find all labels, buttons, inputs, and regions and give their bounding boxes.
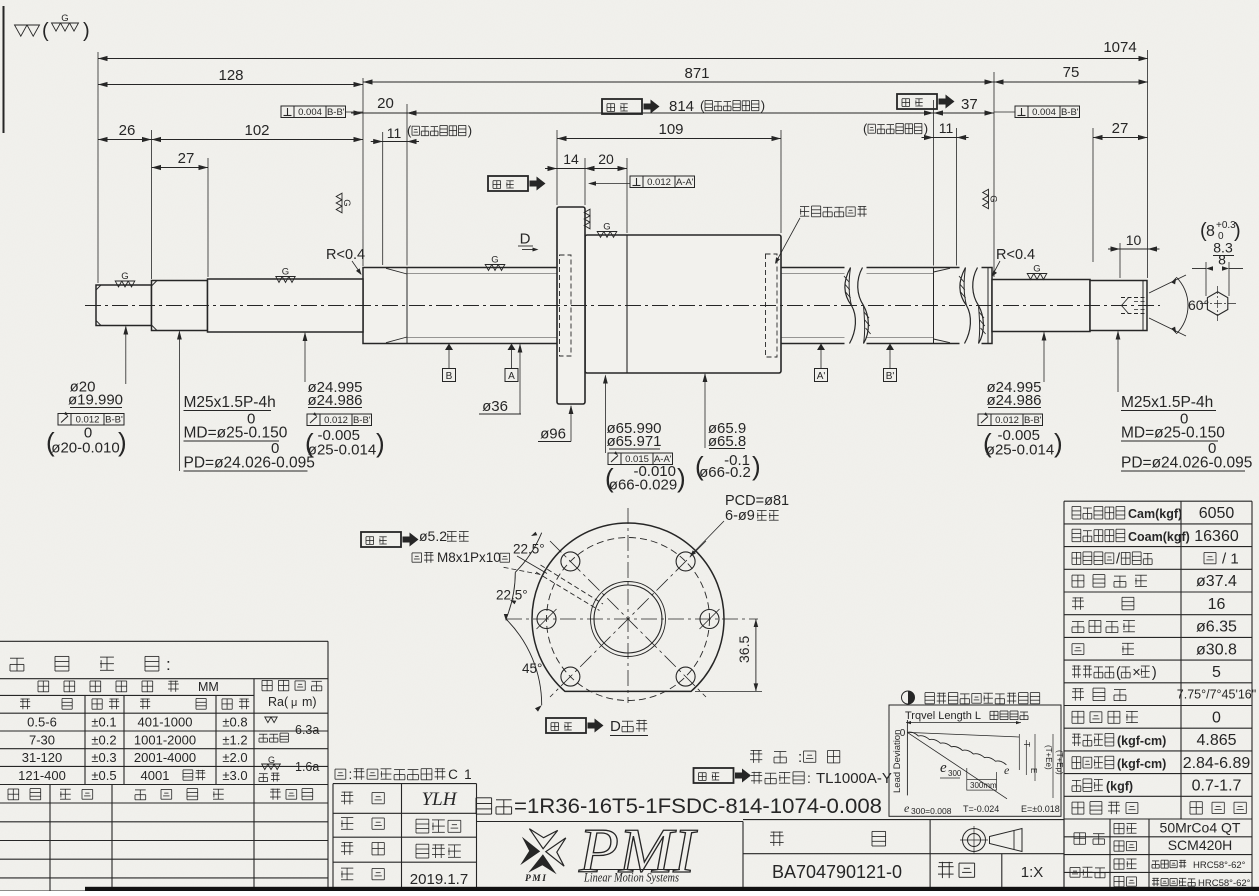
svg-text:MM: MM	[198, 680, 219, 694]
svg-text:4.865: 4.865	[1196, 732, 1236, 749]
svg-text:(T+Ee): (T+Ee)	[1044, 745, 1053, 770]
svg-text:): )	[468, 123, 472, 138]
svg-text::: :	[349, 767, 353, 782]
svg-text:27: 27	[1112, 120, 1129, 137]
svg-text:6.3a: 6.3a	[295, 723, 319, 737]
svg-text:109: 109	[658, 121, 683, 138]
svg-text:): )	[83, 20, 90, 42]
svg-text:11: 11	[387, 125, 402, 141]
svg-text:m): m)	[302, 695, 317, 709]
svg-text:14: 14	[563, 151, 579, 167]
svg-text:121-400: 121-400	[18, 768, 66, 783]
svg-text:±0.2: ±0.2	[91, 732, 116, 747]
svg-text:G: G	[1033, 264, 1040, 275]
svg-text:BA704790121-0: BA704790121-0	[772, 862, 902, 882]
svg-text:Trqvel Length L: Trqvel Length L	[905, 710, 981, 722]
svg-text:): )	[1234, 220, 1241, 242]
svg-text:7-30: 7-30	[29, 732, 55, 747]
svg-text:M8x1Px10: M8x1Px10	[437, 550, 501, 565]
svg-text:20: 20	[598, 151, 614, 167]
svg-text:B-B': B-B'	[1061, 107, 1079, 118]
svg-text:): )	[924, 121, 928, 136]
svg-text:(: (	[700, 98, 705, 113]
svg-text:(: (	[46, 427, 55, 457]
svg-text:1.6a: 1.6a	[295, 760, 319, 774]
svg-text:ø24.986: ø24.986	[307, 392, 362, 409]
svg-text:B-B': B-B'	[105, 414, 123, 425]
svg-text:4001: 4001	[141, 768, 170, 783]
svg-text:871: 871	[684, 65, 709, 82]
svg-text:e: e	[904, 801, 910, 815]
svg-text:T=-0.024: T=-0.024	[963, 804, 999, 814]
svg-text:B-B': B-B'	[1024, 415, 1042, 426]
svg-text:=1R36-16T5-1FSDC-814-1074-0.00: =1R36-16T5-1FSDC-814-1074-0.008	[514, 795, 882, 818]
svg-text:ø24.986: ø24.986	[986, 392, 1041, 409]
svg-text:0.012: 0.012	[324, 415, 348, 426]
svg-text:G: G	[491, 255, 498, 266]
svg-text:27: 27	[178, 150, 195, 167]
svg-text:814: 814	[669, 98, 694, 115]
svg-text:36.5: 36.5	[736, 636, 752, 663]
svg-text:B: B	[446, 371, 453, 382]
svg-text:×: ×	[1132, 665, 1140, 681]
svg-text:(: (	[863, 121, 868, 136]
svg-text:(: (	[605, 463, 614, 493]
svg-text:8: 8	[1206, 223, 1215, 240]
svg-text:2.84-6.89: 2.84-6.89	[1183, 755, 1251, 772]
svg-text:B-B': B-B'	[327, 107, 345, 118]
svg-text:PMI: PMI	[525, 874, 547, 884]
svg-text:401-1000: 401-1000	[138, 715, 193, 730]
svg-text:1074: 1074	[1103, 39, 1136, 56]
svg-text:11: 11	[939, 120, 954, 136]
svg-text:Linear Motion Systems: Linear Motion Systems	[583, 870, 679, 885]
svg-text:10: 10	[1126, 232, 1142, 248]
svg-text:0: 0	[1212, 709, 1221, 726]
svg-text:128: 128	[218, 67, 243, 84]
svg-text:2019.1.7: 2019.1.7	[410, 871, 468, 888]
svg-text:/ 1: / 1	[1222, 551, 1239, 568]
svg-text:SCM420H: SCM420H	[1168, 837, 1233, 853]
svg-text:6050: 6050	[1199, 505, 1235, 522]
svg-text:ø65.8: ø65.8	[708, 433, 746, 450]
svg-text:26: 26	[119, 122, 136, 139]
svg-text:Cam(kgf): Cam(kgf)	[1128, 507, 1182, 521]
svg-text:T: T	[1022, 742, 1031, 747]
svg-text::: :	[166, 655, 171, 674]
svg-text:(kgf-cm): (kgf-cm)	[1117, 734, 1166, 748]
svg-text:R<0.4: R<0.4	[996, 247, 1035, 263]
svg-text:0.5-6: 0.5-6	[27, 715, 57, 730]
svg-text:7.75°/7°45'16": 7.75°/7°45'16"	[1177, 688, 1256, 702]
svg-text:31-120: 31-120	[22, 750, 62, 765]
svg-text:1:X: 1:X	[1021, 864, 1044, 881]
svg-text:2001-4000: 2001-4000	[134, 750, 196, 765]
svg-text:102: 102	[244, 122, 269, 139]
svg-text:(: (	[983, 428, 992, 458]
svg-text:0.7-1.7: 0.7-1.7	[1192, 778, 1242, 795]
svg-text:e: e	[940, 760, 947, 776]
svg-text:R<0.4: R<0.4	[326, 247, 365, 263]
svg-text:G: G	[988, 195, 999, 202]
svg-text:(: (	[305, 428, 314, 458]
svg-text:8: 8	[1218, 252, 1226, 268]
svg-text:(: (	[407, 123, 412, 138]
svg-text:0.012: 0.012	[995, 415, 1019, 426]
svg-text:): )	[1054, 428, 1063, 458]
svg-text:B-B': B-B'	[353, 415, 371, 426]
svg-text:±0.5: ±0.5	[91, 768, 116, 783]
svg-text:(: (	[695, 451, 704, 481]
svg-text:±1.2: ±1.2	[222, 732, 247, 747]
svg-text:Ra(: Ra(	[268, 695, 289, 709]
svg-text:75: 75	[1063, 64, 1080, 81]
svg-text:0.004: 0.004	[298, 107, 322, 118]
svg-text:300: 300	[948, 769, 962, 778]
svg-text:A: A	[508, 371, 515, 382]
svg-text:Lead Deviation: Lead Deviation	[892, 730, 903, 793]
svg-text:MD=ø25-0.150: MD=ø25-0.150	[1121, 425, 1225, 442]
svg-text:ø20-0.010: ø20-0.010	[51, 440, 119, 457]
svg-text:50MrCo4 QT: 50MrCo4 QT	[1160, 820, 1241, 836]
svg-text:e: e	[1004, 763, 1010, 777]
svg-text:): )	[376, 428, 385, 458]
svg-text:E: E	[1029, 768, 1038, 773]
svg-text:±2.0: ±2.0	[222, 750, 247, 765]
svg-text:G: G	[268, 755, 275, 765]
svg-text:16: 16	[1208, 596, 1226, 613]
svg-text:(: (	[1116, 665, 1121, 681]
svg-text:±0.8: ±0.8	[222, 715, 247, 730]
svg-text:): )	[677, 463, 686, 493]
svg-text:1: 1	[464, 767, 472, 782]
svg-text:300mm: 300mm	[970, 781, 997, 790]
svg-text:ø5.2: ø5.2	[419, 528, 447, 544]
svg-text:(kgf): (kgf)	[1106, 780, 1133, 794]
svg-text:B': B'	[886, 371, 895, 382]
svg-text:22.5°: 22.5°	[513, 542, 545, 557]
svg-text:±0.3: ±0.3	[91, 750, 116, 765]
svg-text:G: G	[61, 13, 68, 24]
svg-text:45°: 45°	[522, 661, 542, 676]
svg-text:YLH: YLH	[422, 789, 458, 810]
svg-text:60°: 60°	[1188, 297, 1209, 313]
svg-text:μ: μ	[291, 697, 297, 709]
svg-text:): )	[752, 451, 761, 481]
svg-text:300=0.008: 300=0.008	[911, 806, 952, 816]
svg-text:G: G	[341, 199, 352, 206]
svg-text:D: D	[520, 231, 531, 248]
svg-text:ø30.8: ø30.8	[1196, 641, 1237, 658]
svg-text:16360: 16360	[1194, 528, 1239, 545]
svg-text:): )	[761, 98, 765, 113]
svg-text:C: C	[448, 767, 458, 782]
svg-text:MD=ø25-0.150: MD=ø25-0.150	[184, 425, 288, 442]
svg-text:ø25-0.014: ø25-0.014	[986, 442, 1054, 459]
svg-text:PCD=ø81: PCD=ø81	[725, 493, 789, 509]
svg-text:): )	[1152, 665, 1157, 681]
svg-text:ø66-0.029: ø66-0.029	[609, 477, 677, 494]
svg-text:6-ø9: 6-ø9	[725, 508, 755, 524]
svg-text:E=±0.018: E=±0.018	[1021, 804, 1060, 814]
svg-text:0.004: 0.004	[1032, 107, 1056, 118]
svg-text:ø19.990: ø19.990	[68, 392, 123, 409]
svg-text:37: 37	[961, 96, 978, 113]
svg-text:Coam(kgf): Coam(kgf)	[1128, 530, 1190, 544]
svg-text:TL1000A-Y: TL1000A-Y	[816, 770, 892, 787]
svg-text:A-A': A-A'	[676, 177, 694, 188]
svg-text:PD=ø24.026-0.095: PD=ø24.026-0.095	[1121, 455, 1252, 472]
svg-text:1001-2000: 1001-2000	[134, 732, 196, 747]
svg-text:±0.1: ±0.1	[91, 715, 116, 730]
svg-text:ø66-0.2: ø66-0.2	[699, 464, 751, 481]
svg-text:G: G	[282, 267, 289, 278]
svg-text:(T+Ep): (T+Ep)	[1055, 750, 1064, 775]
svg-text::: :	[798, 749, 802, 766]
svg-text:±3.0: ±3.0	[222, 768, 247, 783]
svg-text:G: G	[121, 271, 128, 282]
svg-text:M25x1.5P-4h: M25x1.5P-4h	[184, 394, 276, 411]
svg-text:D: D	[610, 718, 621, 735]
svg-text:0.012: 0.012	[647, 177, 671, 188]
svg-text:5: 5	[1212, 664, 1221, 681]
svg-text:ø96: ø96	[540, 426, 566, 443]
svg-text:HRC58°-62°: HRC58°-62°	[1193, 860, 1246, 871]
svg-text::: :	[807, 770, 811, 786]
svg-text:ø36: ø36	[482, 398, 508, 415]
svg-text:ø25-0.014: ø25-0.014	[308, 442, 376, 459]
svg-text:A': A'	[817, 371, 826, 382]
svg-text:20: 20	[377, 95, 394, 112]
svg-text:(kgf-cm): (kgf-cm)	[1117, 757, 1166, 771]
svg-text:ø37.4: ø37.4	[1196, 573, 1237, 590]
svg-text:): )	[118, 427, 127, 457]
svg-text:M25x1.5P-4h: M25x1.5P-4h	[1121, 394, 1213, 411]
svg-text:G: G	[603, 222, 610, 233]
svg-text:PD=ø24.026-0.095: PD=ø24.026-0.095	[184, 455, 315, 472]
svg-text:ø65.971: ø65.971	[606, 433, 661, 450]
svg-text:(: (	[42, 20, 49, 42]
svg-text:ø6.35: ø6.35	[1196, 619, 1237, 636]
